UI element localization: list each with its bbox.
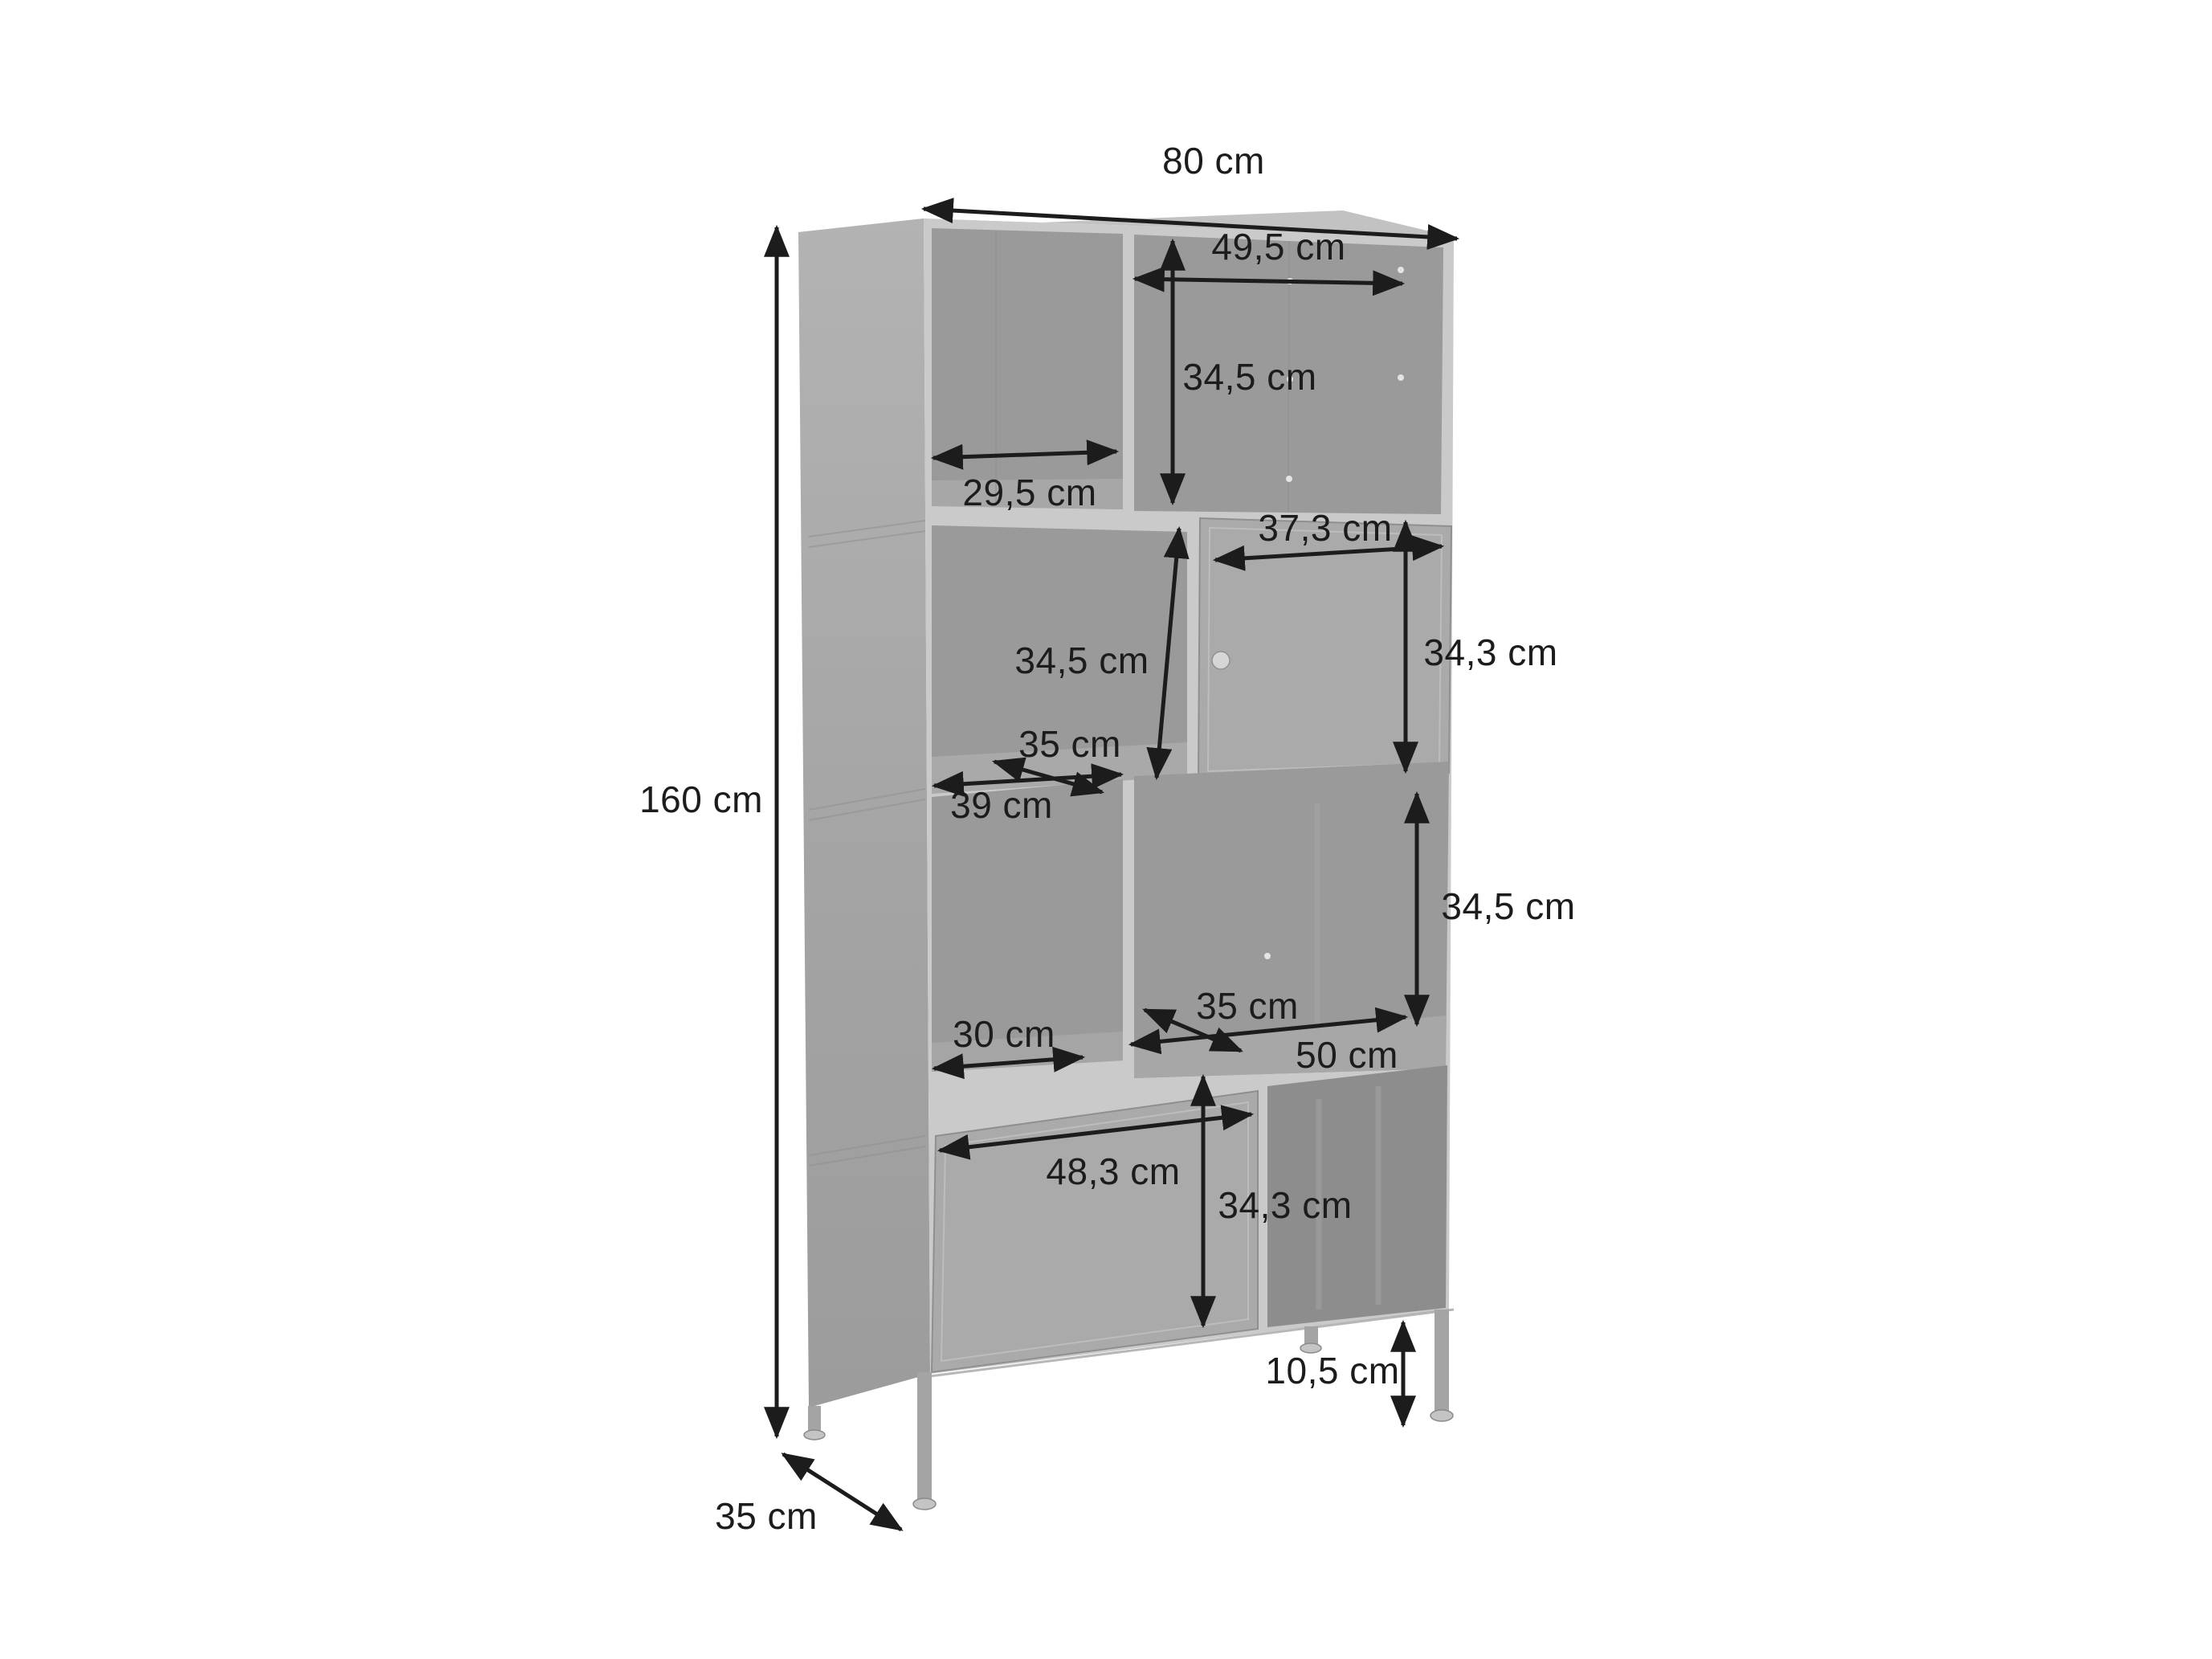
hole — [1398, 374, 1404, 381]
dim-label: 34,5 cm — [1014, 639, 1149, 681]
dim-label: 80 cm — [1162, 140, 1265, 182]
hole — [1286, 476, 1292, 482]
leg-foot — [1430, 1410, 1453, 1421]
cabinet-side-panel — [798, 219, 930, 1408]
hole — [1398, 267, 1404, 273]
dim-label: 50 cm — [1296, 1034, 1398, 1076]
leg-foot — [804, 1430, 825, 1440]
hole — [1264, 953, 1271, 959]
dim-leg-height: 10,5 cm — [1265, 1322, 1403, 1425]
dim-label: 34,5 cm — [1182, 356, 1316, 398]
dim-label: 10,5 cm — [1265, 1350, 1399, 1391]
dim-label: 39 cm — [950, 784, 1053, 826]
dim-label: 29,5 cm — [962, 472, 1096, 513]
dim-label: 34,3 cm — [1423, 631, 1557, 673]
upper-door-knob — [1212, 652, 1230, 669]
dim-label: 34,5 cm — [1441, 885, 1575, 927]
cabinet — [798, 210, 1454, 1510]
dimension-diagram-page: 80 cm 160 cm 35 cm 49,5 cm 34,5 cm 29,5 … — [0, 0, 2212, 1659]
dim-label: 48,3 cm — [1046, 1150, 1180, 1192]
compartment-top-left — [932, 228, 1123, 509]
dim-label: 35 cm — [1018, 723, 1121, 765]
leg-front-right — [1435, 1310, 1449, 1417]
dim-label: 49,5 cm — [1211, 226, 1345, 268]
cabinet-dimension-diagram: 80 cm 160 cm 35 cm 49,5 cm 34,5 cm 29,5 … — [0, 0, 2212, 1659]
dim-label: 160 cm — [639, 778, 763, 820]
leg-foot — [913, 1498, 936, 1510]
dim-label: 34,3 cm — [1218, 1184, 1352, 1226]
dim-label: 37,3 cm — [1258, 507, 1392, 549]
dim-label: 35 cm — [1196, 985, 1299, 1027]
dim-label: 35 cm — [715, 1495, 818, 1537]
leg-front-left — [917, 1372, 932, 1506]
dim-overall-depth: 35 cm — [715, 1454, 901, 1537]
dim-overall-height: 160 cm — [639, 227, 777, 1436]
dim-label: 30 cm — [953, 1013, 1055, 1055]
